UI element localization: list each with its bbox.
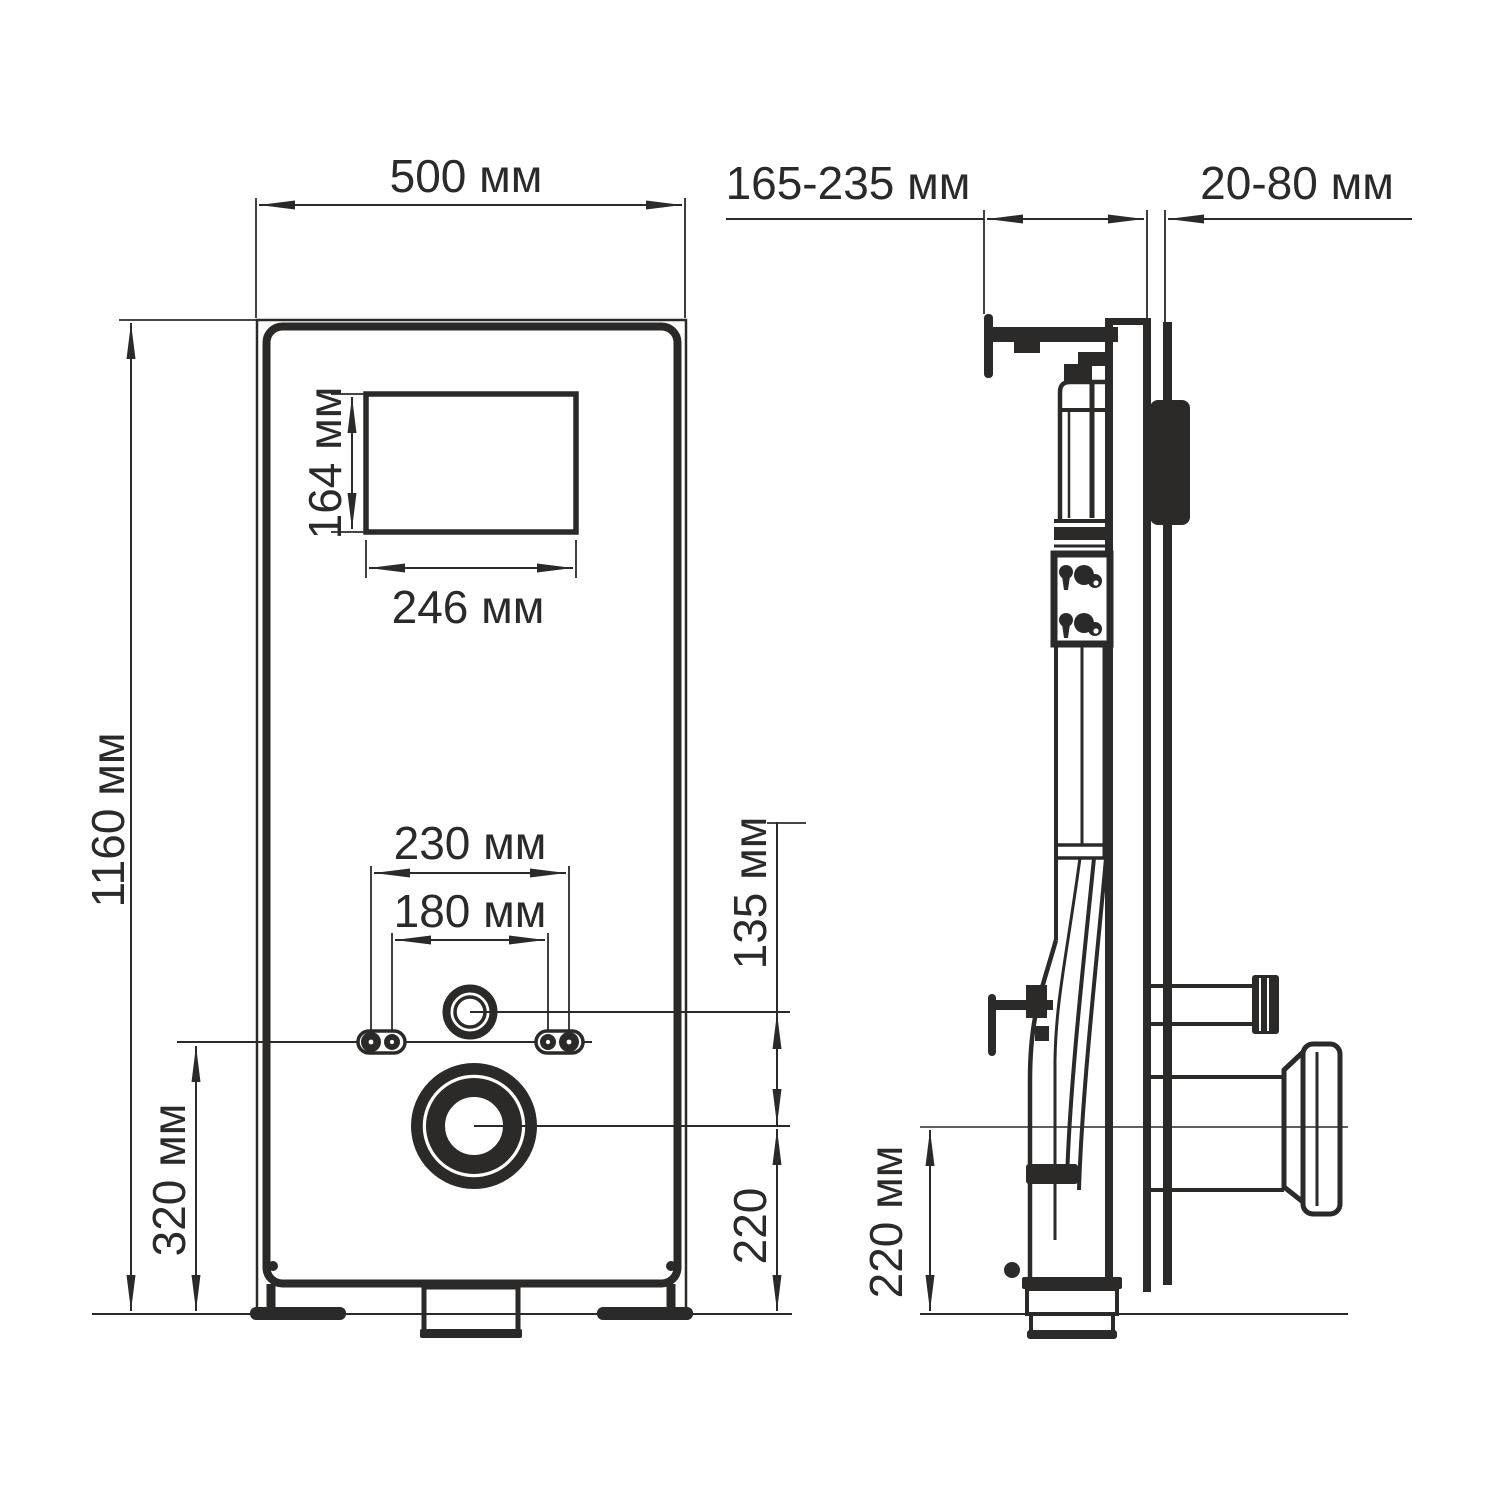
drain-bend-box-base <box>420 1329 522 1338</box>
wall-bracket-step <box>1014 342 1040 353</box>
panel-corner-dot-right <box>666 1261 676 1271</box>
side-foot <box>1004 1262 1122 1339</box>
installation-frame-drawing: 500 мм 1160 мм 164 мм 246 мм 230 мм 180 … <box>0 0 1500 1500</box>
label-window-246: 246 мм <box>392 581 545 633</box>
label-inlet-135: 135 мм <box>724 817 776 970</box>
outlet-pipe-side <box>1151 1044 1340 1214</box>
label-wall-20-80: 20-80 мм <box>1200 157 1394 209</box>
drain-outlet-port <box>417 1069 790 1183</box>
keyhole-mount-plate <box>1054 554 1110 644</box>
technical-drawing-page: 500 мм 1160 мм 164 мм 246 мм 230 мм 180 … <box>0 0 1500 1500</box>
flange-ring <box>1303 1044 1340 1214</box>
label-outlet-220-front: 220 <box>724 1188 776 1265</box>
label-height-1160: 1160 мм <box>82 733 134 908</box>
flush-plate-side <box>1150 400 1190 525</box>
label-bolt-height-320: 320 мм <box>143 1104 195 1257</box>
dim-inlet-135: 135 мм <box>724 817 806 1125</box>
service-window <box>366 394 576 532</box>
label-outlet-220-side: 220 мм <box>860 1146 912 1299</box>
label-bolts-230: 230 мм <box>394 817 547 869</box>
water-inlet-port <box>447 989 791 1036</box>
dim-bolts-180: 180 мм <box>392 885 548 1030</box>
pipe-clamp <box>1026 1164 1078 1184</box>
label-window-164: 164 мм <box>299 387 351 540</box>
frame-rail-back <box>1143 318 1151 1292</box>
dim-bolt-height-320: 320 мм <box>143 1046 196 1311</box>
dim-wall-20-80: 20-80 мм <box>1168 157 1412 219</box>
side-view <box>920 314 1348 1339</box>
panel-corner-dot-left <box>268 1261 278 1271</box>
dim-outlet-220-front: 220 <box>724 1129 777 1311</box>
label-width-500: 500 мм <box>390 150 543 202</box>
label-depth-165-235: 165-235 мм <box>726 157 971 209</box>
dim-width-500: 500 мм <box>256 150 685 318</box>
frame-rail-front <box>1105 318 1113 1290</box>
dim-depth-165-235: 165-235 мм <box>726 157 1165 322</box>
threaded-cap <box>1252 975 1279 1034</box>
dim-window-246: 246 мм <box>366 540 576 633</box>
label-bolts-180: 180 мм <box>394 885 547 937</box>
wall-bracket-arm <box>992 327 1118 342</box>
cistern-tank <box>1054 352 1112 546</box>
flush-bend <box>1026 644 1112 1278</box>
bolt-pair-left <box>358 1031 405 1053</box>
drain-bend-box <box>424 1287 518 1333</box>
dim-window-164: 164 мм <box>299 387 366 540</box>
dim-outlet-220-side: 220 мм <box>860 1130 930 1311</box>
bolt-pair-right <box>536 1031 583 1053</box>
wall-bracket-bar <box>984 314 993 378</box>
water-valve-bracket <box>988 985 1053 1056</box>
